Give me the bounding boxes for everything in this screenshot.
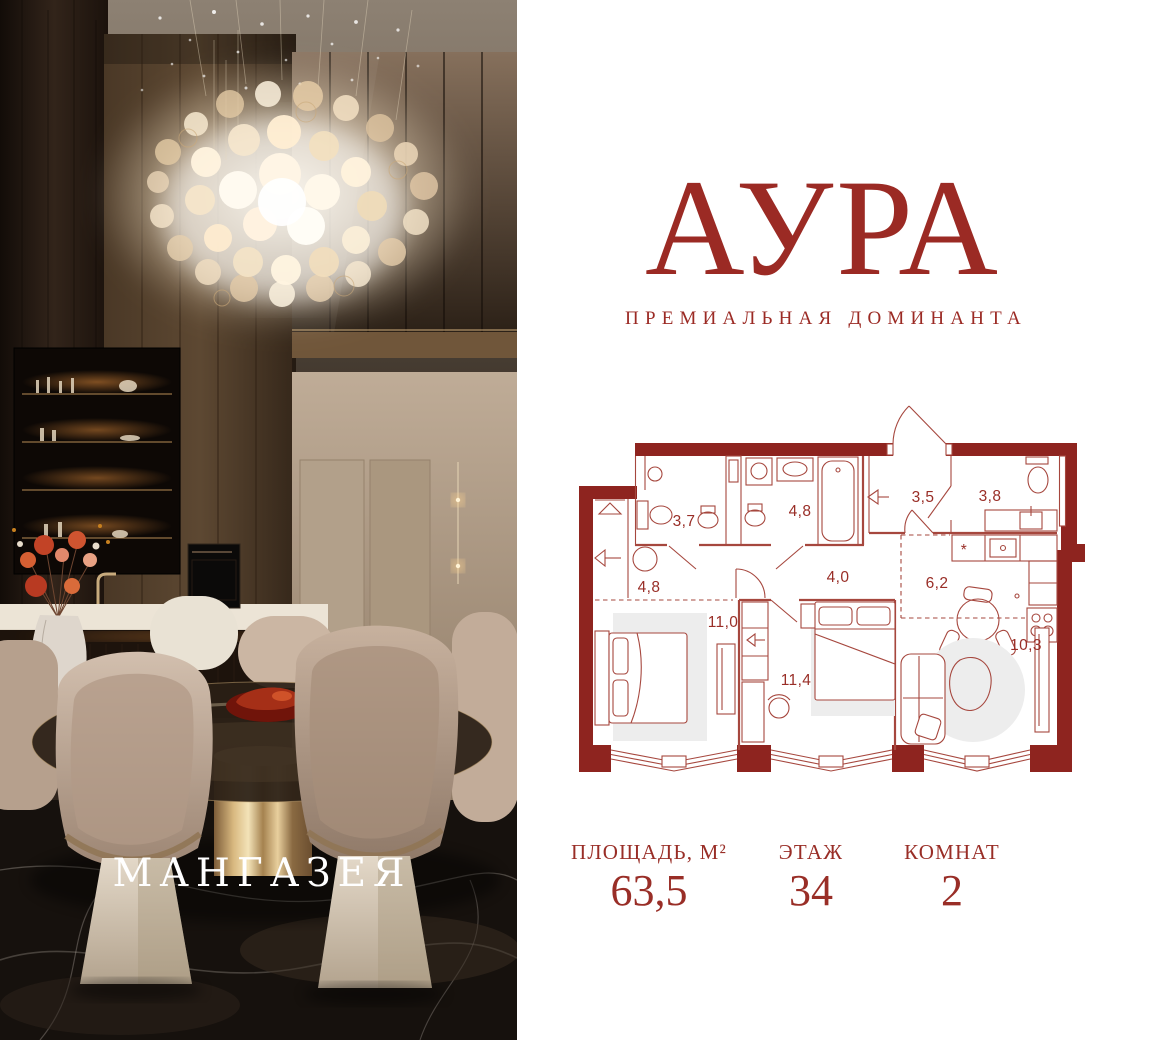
kitchen-symbol: * [961, 542, 967, 559]
room-label-bathroom-1: 3,7 [673, 513, 696, 530]
bedroom-1-furniture [595, 613, 735, 741]
room-label-bathroom-3: 3,8 [979, 488, 1002, 505]
project-title: АУРА [523, 158, 1123, 299]
bathroom-2-fixtures [745, 457, 858, 545]
room-label-living-room: 10,3 [1010, 637, 1042, 654]
interior-photo: МАНГАЗЕЯ [0, 0, 517, 1040]
room-label-hallway: 4,8 [638, 579, 661, 596]
room-label-bathroom-2: 4,8 [789, 503, 812, 520]
stat-rooms-value: 2 [862, 869, 1042, 913]
floor-plan: * [565, 398, 1085, 790]
stat-area: ПЛОЩАДЬ, М² 63,5 [559, 840, 739, 913]
room-label-bedroom-1: 11,0 [708, 614, 739, 631]
developer-brand-text: МАНГАЗЕЯ [0, 851, 517, 897]
stat-area-label: ПЛОЩАДЬ, М² [559, 840, 739, 865]
dining-table-symbol [957, 599, 999, 641]
floor-plan-drawing: * [565, 398, 1085, 790]
flyer-page: МАНГАЗЕЯ АУРА ПРЕМИАЛЬНАЯ ДОМИНАНТА [0, 0, 1150, 1040]
room-label-bedroom-2: 11,4 [781, 672, 812, 689]
bedroom-2-furniture [742, 602, 895, 742]
project-subtitle: ПРЕМИАЛЬНАЯ ДОМИНАНТА [523, 308, 1123, 330]
room-label-corridor: 4,0 [827, 569, 850, 586]
room-label-kitchen: 6,2 [926, 575, 949, 592]
entrance-door [887, 406, 952, 455]
room-label-entry-hall: 3,5 [912, 489, 935, 506]
entry-hall-icons [868, 490, 889, 504]
bay-windows [611, 750, 1030, 771]
stat-rooms-label: КОМНАТ [862, 840, 1042, 865]
stat-rooms: КОМНАТ 2 [862, 840, 1042, 913]
stat-area-value: 63,5 [559, 869, 739, 913]
